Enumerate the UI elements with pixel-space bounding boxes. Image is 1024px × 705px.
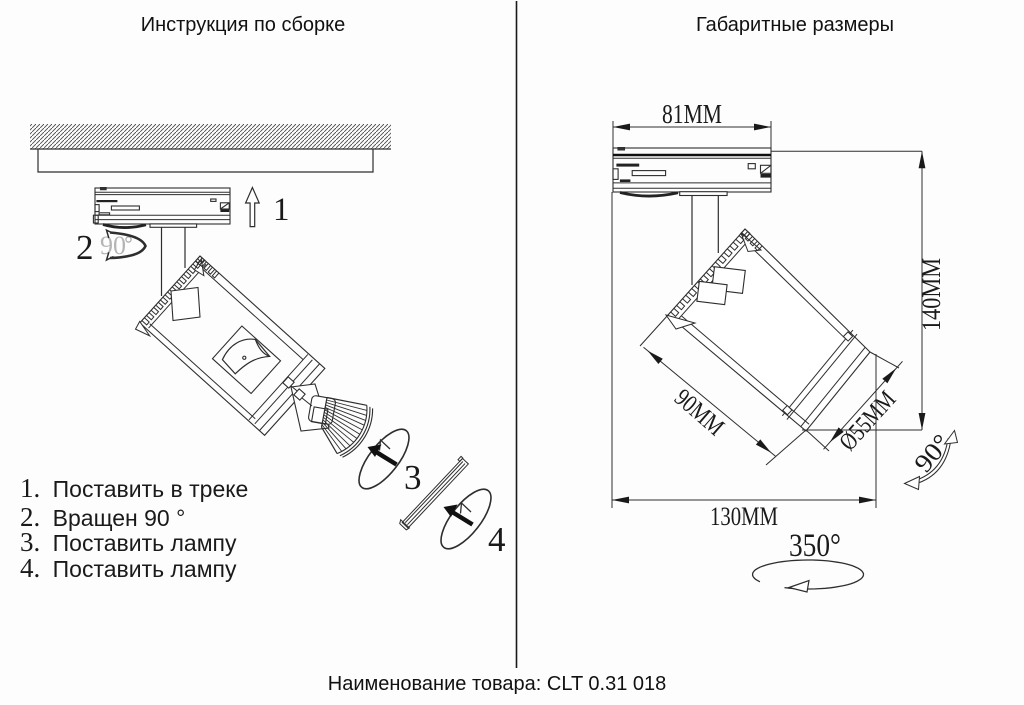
svg-text:Наименование товара: CLT 0.31: Наименование товара: CLT 0.31 018 [328,673,667,695]
svg-text:Инструкция по сборке: Инструкция по сборке [141,14,346,36]
svg-text:3. Поставить лампу: 3. Поставить лампу [20,527,237,557]
svg-text:2: 2 [76,228,94,267]
svg-text:4: 4 [488,520,506,559]
svg-text:4. Поставить лампу: 4. Поставить лампу [20,553,237,583]
svg-text:140MM: 140MM [917,258,946,331]
svg-text:1: 1 [273,192,290,228]
svg-text:1. Поставить в треке: 1. Поставить в треке [20,473,248,503]
svg-text:3: 3 [404,458,422,497]
svg-text:90: 90 [100,231,126,260]
svg-text:81MM: 81MM [662,99,722,129]
svg-text:350°: 350° [789,528,841,564]
svg-text:Габаритные размеры: Габаритные размеры [696,14,894,36]
svg-text:130MM: 130MM [710,502,778,531]
